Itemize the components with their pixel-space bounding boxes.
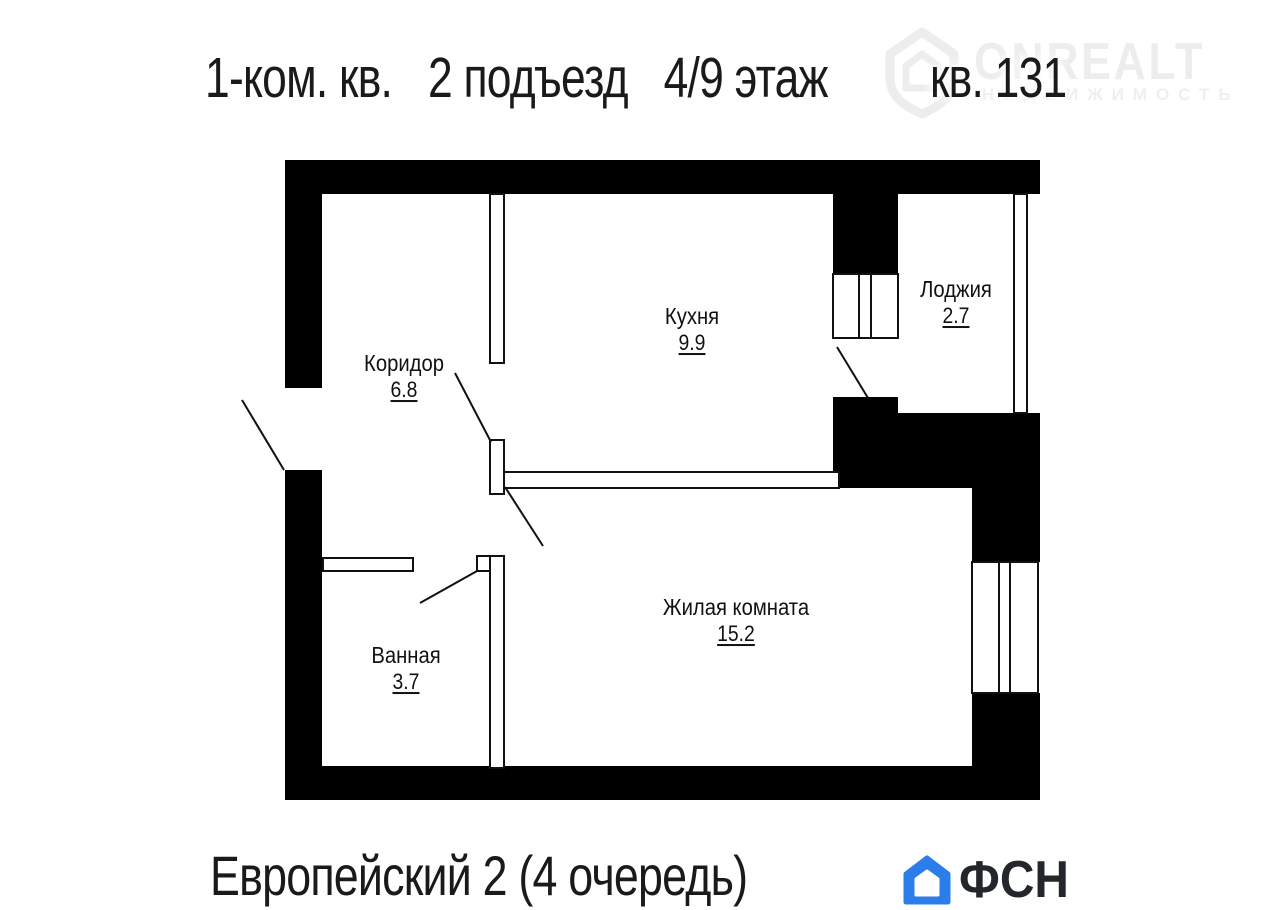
door-swing-entrance	[242, 400, 284, 470]
partition-bathroom-right	[490, 556, 504, 768]
floorplan-page: ONREALT НЕДВИЖИМОСТЬ 1-ком. кв. 2 подъез…	[0, 0, 1280, 910]
pillar-kitchen-loggia-bottom	[833, 397, 898, 488]
developer-house-icon	[903, 855, 951, 905]
room-label-living-room: Жилая комната 15.2	[663, 594, 809, 648]
room-area: 15.2	[663, 620, 809, 648]
header-apartment-number: кв. 131	[930, 50, 1067, 107]
floor-plan	[0, 0, 1280, 910]
wall-left-upper	[285, 160, 322, 388]
door-swing-living-room	[505, 487, 543, 546]
header-entrance: 2 подъезд	[428, 50, 628, 107]
complex-name: Европейский 2 (4 очередь)	[210, 848, 747, 904]
developer-logo: ФСН	[903, 854, 1079, 906]
door-swing-bathroom	[420, 571, 477, 603]
room-label-loggia: Лоджия 2.7	[920, 276, 992, 330]
partition-bathroom-top	[323, 558, 413, 571]
room-label-kitchen: Кухня 9.9	[665, 303, 719, 357]
window-living-room	[972, 562, 1038, 693]
room-area: 3.7	[371, 668, 440, 696]
partition-corridor-kitchen	[490, 194, 504, 363]
wall-living-east-upper	[972, 473, 1040, 562]
plan-header: 1-ком. кв. 2 подъезд 4/9 этаж	[205, 50, 828, 107]
room-area: 9.9	[665, 329, 719, 357]
header-floor: 4/9 этаж	[664, 50, 828, 107]
wall-top	[285, 160, 1040, 194]
room-name: Ванная	[371, 642, 440, 668]
room-label-corridor: Коридор 6.8	[364, 350, 444, 404]
pillar-kitchen-loggia-top	[833, 194, 898, 274]
wall-living-east-lower	[972, 693, 1040, 768]
door-swing-loggia	[837, 347, 868, 398]
wall-left-lower	[285, 470, 322, 800]
room-name: Кухня	[665, 303, 719, 329]
window-kitchen-loggia	[833, 274, 898, 338]
developer-name: ФСН	[959, 854, 1069, 906]
header-unit-type: 1-ком. кв.	[205, 50, 392, 107]
partition-cap	[490, 440, 504, 494]
room-area: 6.8	[364, 376, 444, 404]
partition-corridor-living	[504, 472, 839, 488]
room-label-bathroom: Ванная 3.7	[371, 642, 440, 696]
window-loggia-east	[1014, 194, 1027, 413]
door-swing-kitchen	[455, 373, 491, 442]
room-area: 2.7	[920, 302, 992, 330]
wall-bottom	[285, 766, 1040, 800]
room-name: Жилая комната	[663, 594, 809, 620]
room-name: Коридор	[364, 350, 444, 376]
room-name: Лоджия	[920, 276, 992, 302]
